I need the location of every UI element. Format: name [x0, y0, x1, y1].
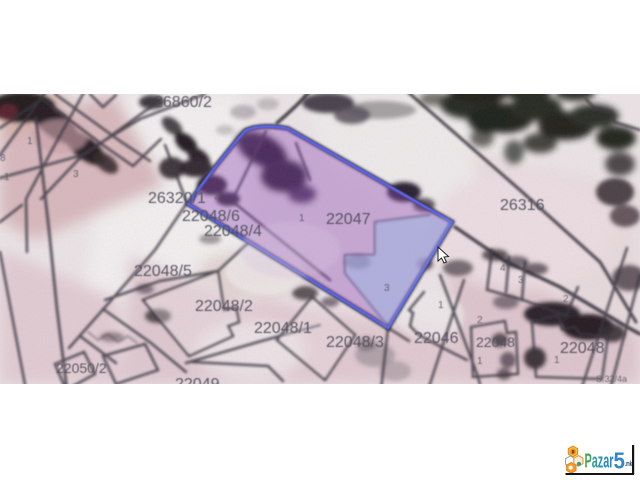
- svg-text:.mk: .mk: [625, 459, 632, 468]
- svg-text:5: 5: [614, 448, 626, 474]
- svg-text:Pazar: Pazar: [585, 451, 614, 473]
